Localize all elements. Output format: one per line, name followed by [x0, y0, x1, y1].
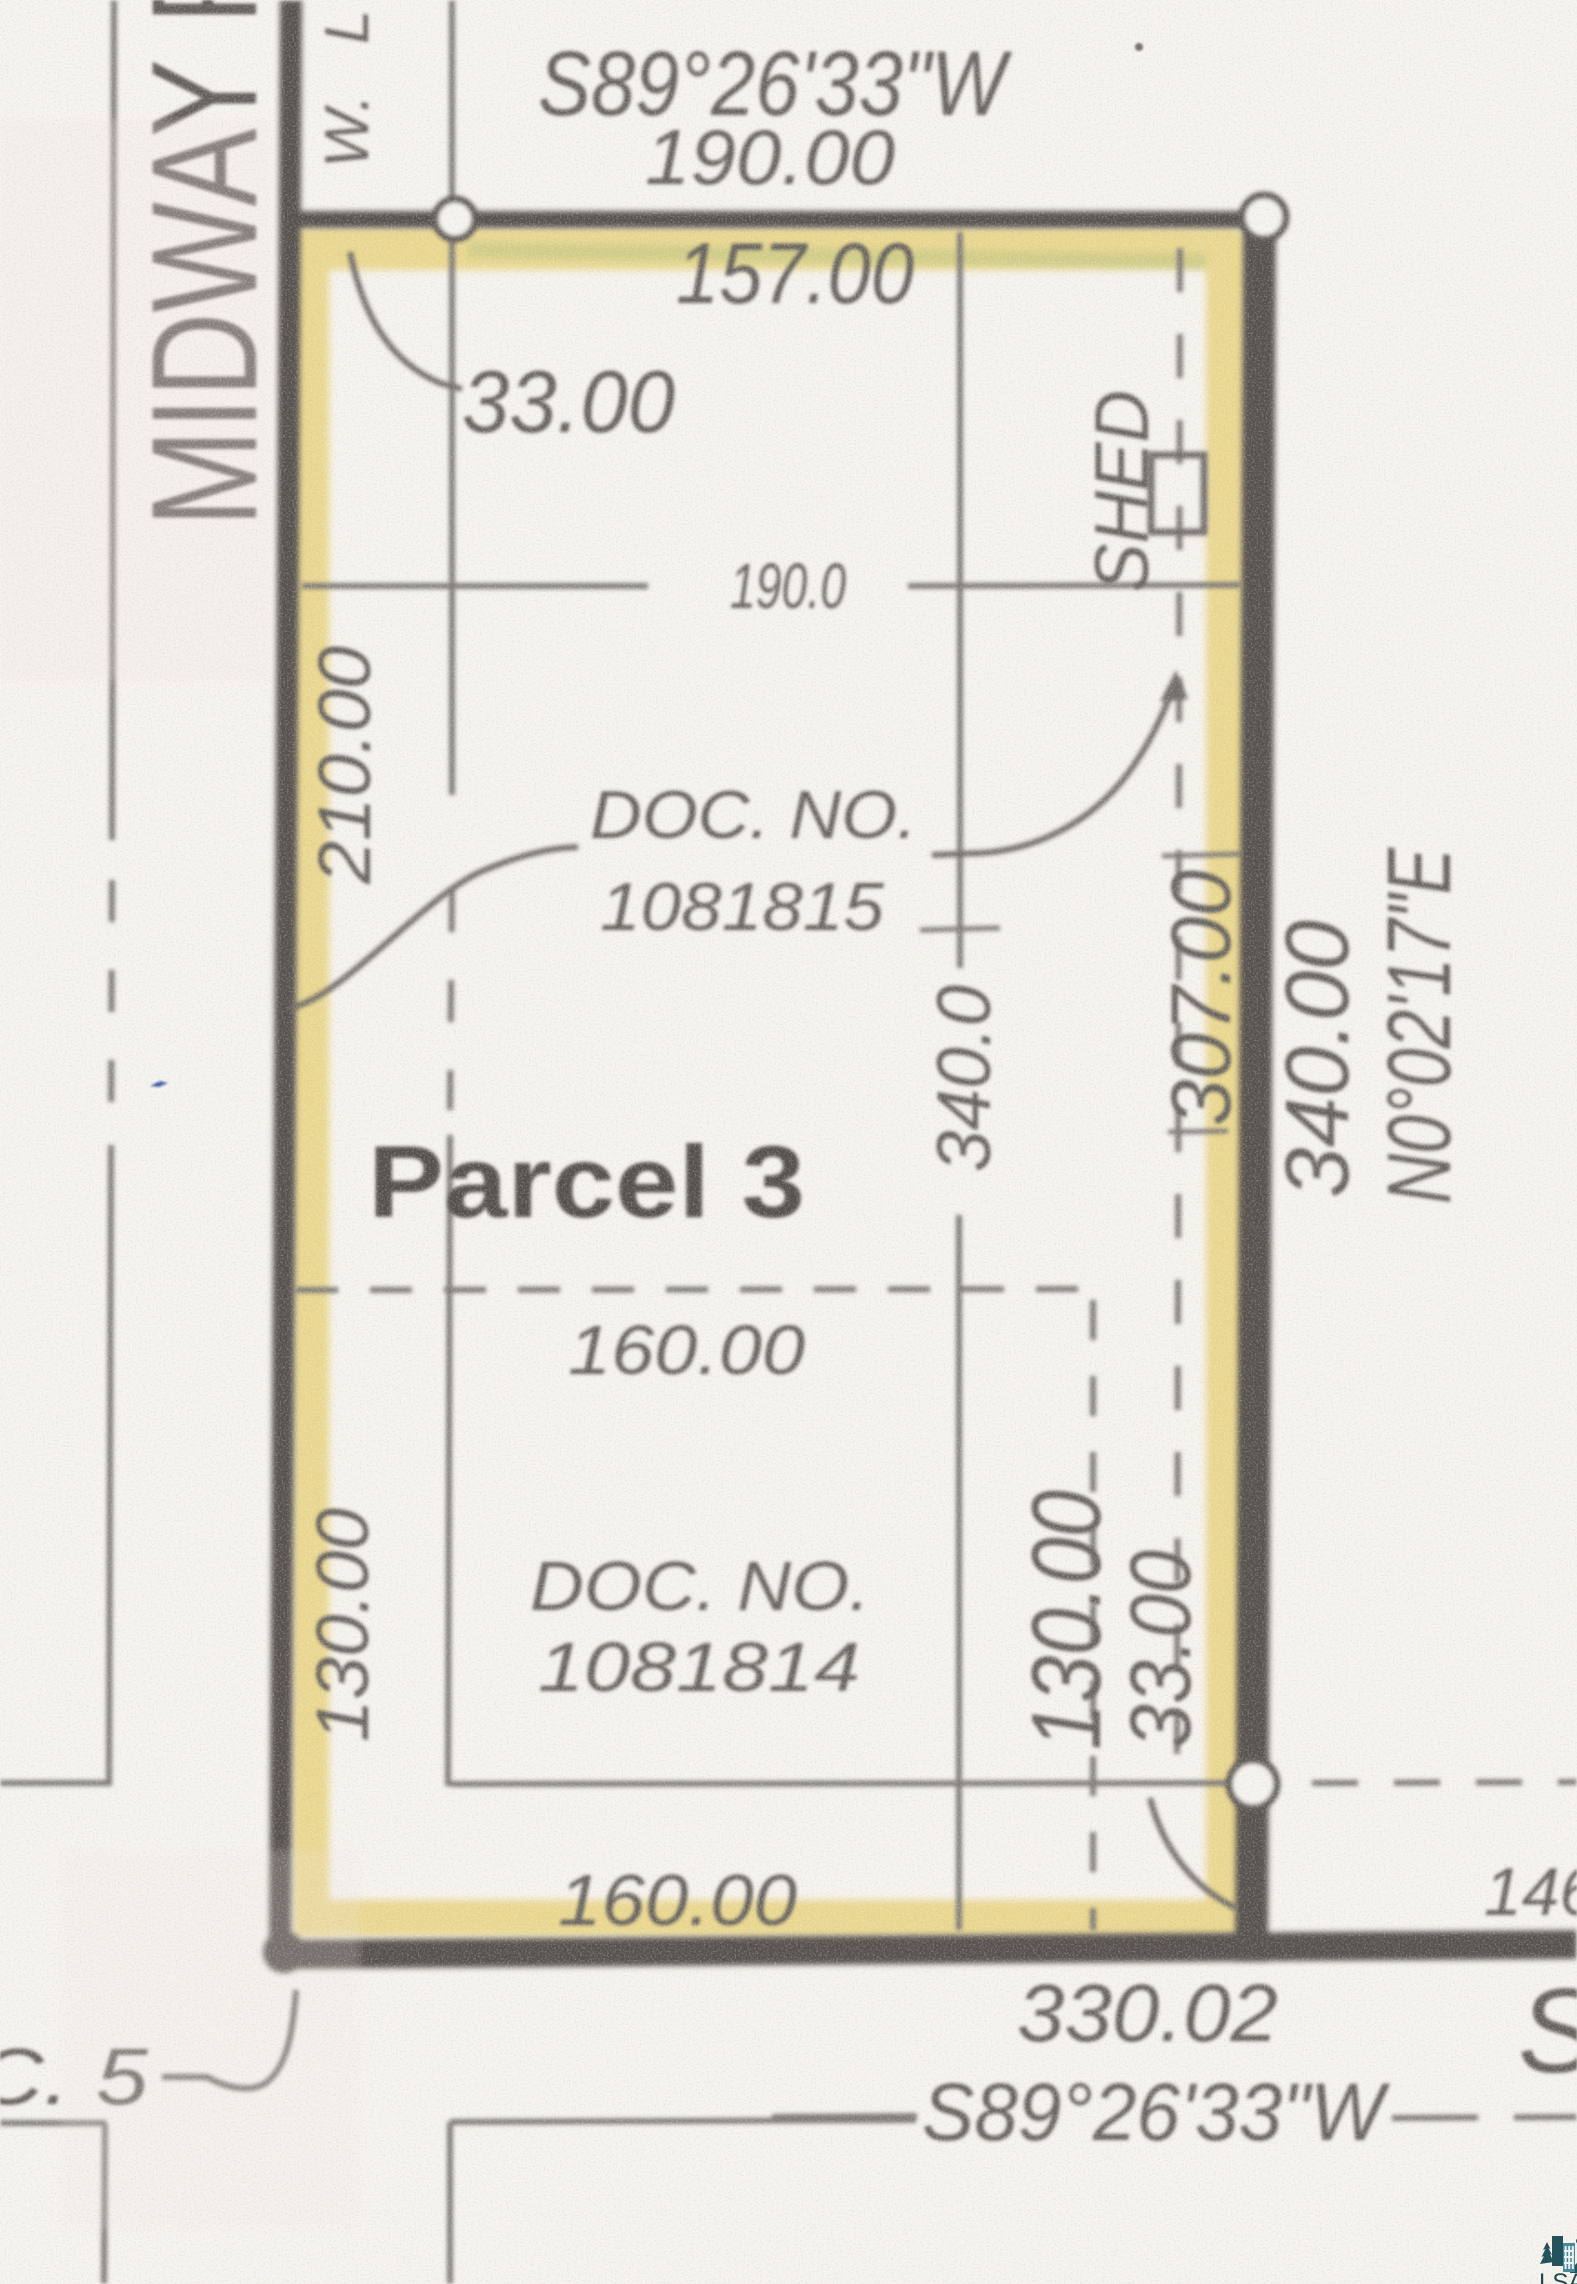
svg-text:LSAF: LSAF — [1539, 2269, 1577, 2284]
